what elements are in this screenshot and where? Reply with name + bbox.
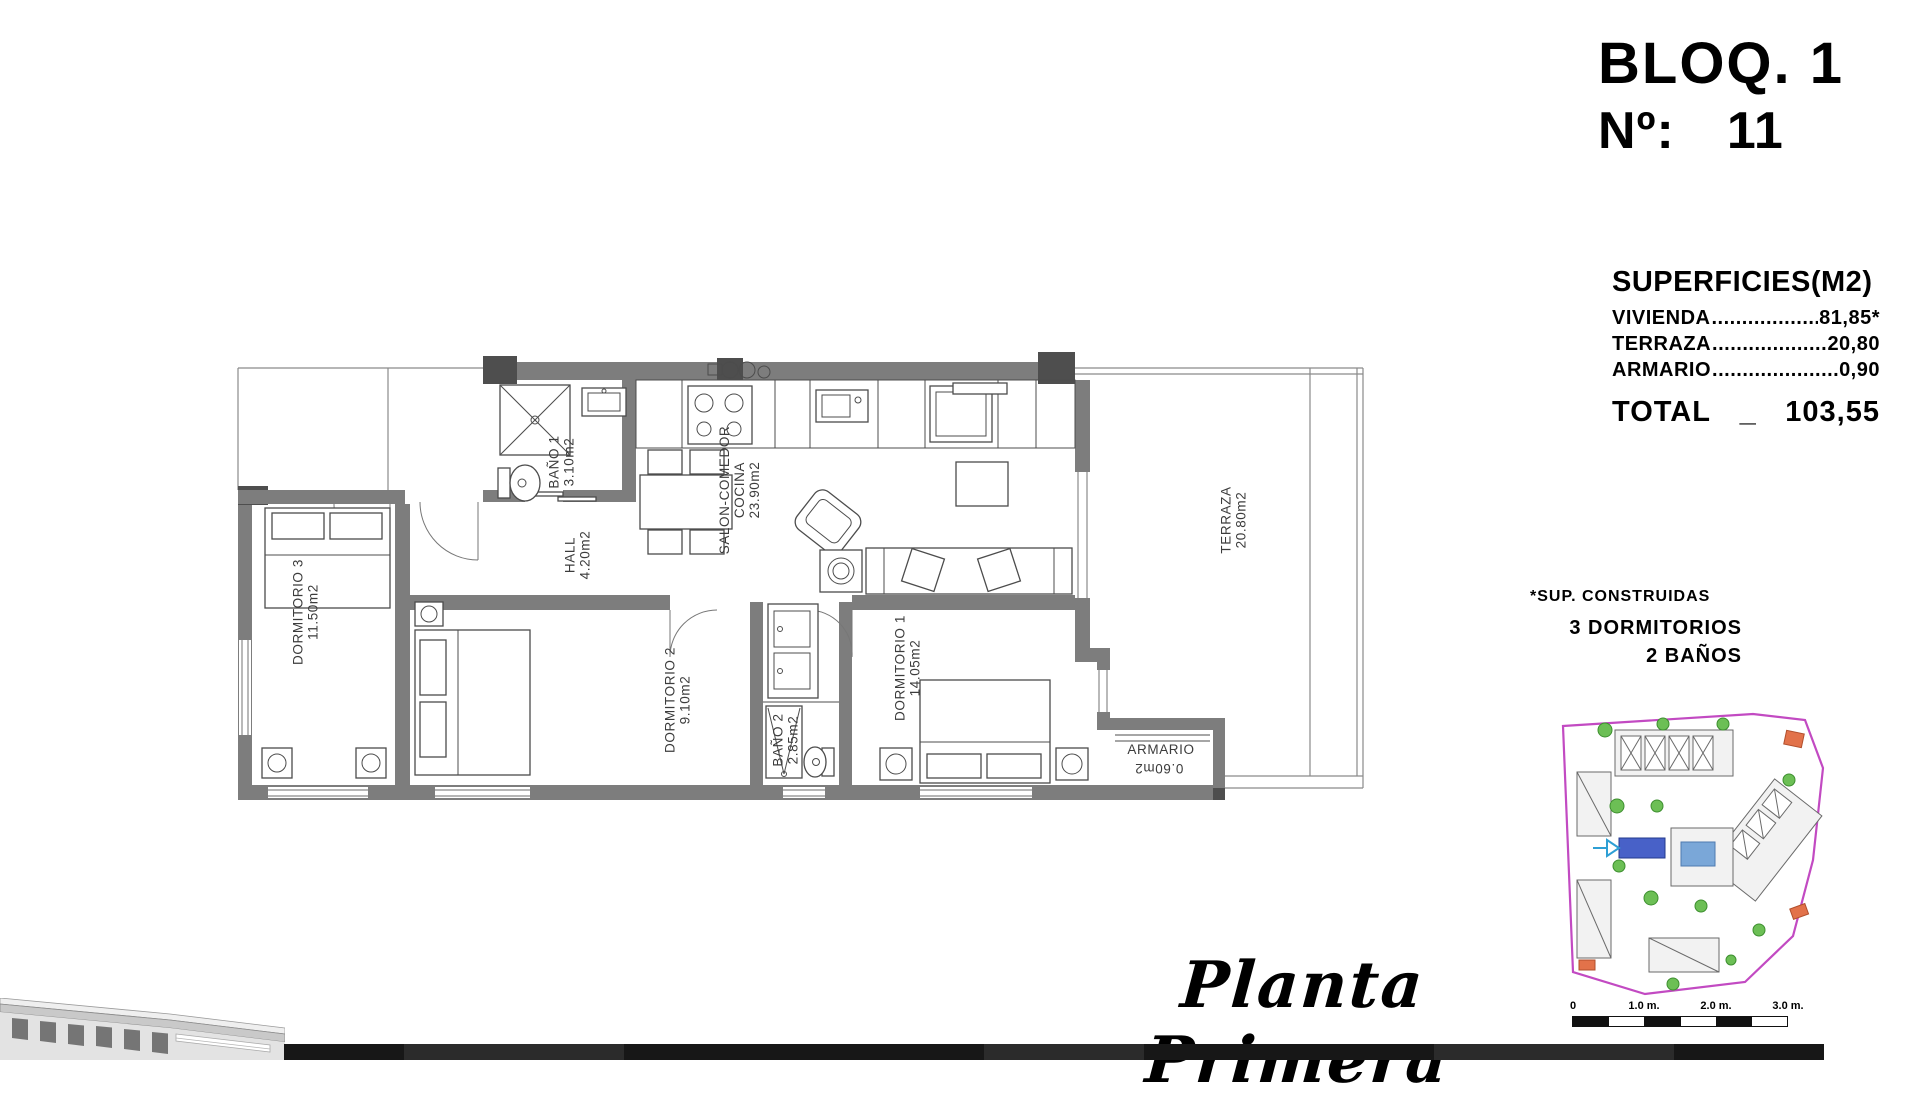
- total-value: 103,55: [1785, 396, 1880, 429]
- scale-labels: 01.0 m.2.0 m.3.0 m.: [1572, 1000, 1788, 1014]
- scale-label: 2.0 m.: [1700, 1000, 1731, 1012]
- dot-leader: ....................................: [1712, 333, 1826, 356]
- room-summary: 3 DORMITORIOS 2 BAÑOS: [1528, 614, 1742, 670]
- surface-value: 81,85*: [1819, 307, 1880, 330]
- surface-total-row: TOTAL _ 103,55: [1612, 396, 1880, 429]
- total-label: TOTAL: [1612, 396, 1711, 429]
- dormitorio1-terrace-window: [1099, 670, 1107, 712]
- side-table: [956, 462, 1008, 506]
- svg-text:HALL4.20m2: HALL4.20m2: [563, 531, 593, 580]
- dot-leader: ....................................: [1712, 359, 1838, 382]
- bed2: [415, 602, 530, 775]
- unit-number-row: Nº: 11: [1598, 101, 1898, 161]
- site-location-plan: [1553, 710, 1838, 1002]
- scale-ruler: [1572, 1016, 1788, 1027]
- block-title: BLOQ. 1: [1598, 34, 1898, 95]
- bath2-toilet: [804, 747, 834, 777]
- tv-bench: [953, 383, 1007, 394]
- salon-terrace-window: [1078, 472, 1087, 598]
- bedrooms-count: 3 DORMITORIOS: [1528, 614, 1742, 642]
- sofa: [866, 548, 1072, 594]
- surface-row-armario: ARMARIO ................................…: [1612, 359, 1880, 382]
- surface-row-vivienda: VIVIENDA ...............................…: [1612, 307, 1880, 330]
- surface-label: VIVIENDA: [1612, 307, 1710, 330]
- scale-label: 3.0 m.: [1772, 1000, 1803, 1012]
- unit-number-label: Nº:: [1598, 101, 1675, 161]
- surfaces-title: SUPERFICIES(M2): [1612, 266, 1880, 299]
- double-sink-vanity: [763, 604, 839, 702]
- svg-text:TERRAZA20.80m2: TERRAZA20.80m2: [1219, 486, 1249, 553]
- scale-bar: 01.0 m.2.0 m.3.0 m.: [1572, 1000, 1788, 1030]
- site-pool: [1681, 842, 1715, 866]
- bathrooms-count: 2 BAÑOS: [1528, 642, 1742, 670]
- floor-name-title: Planta Primera: [1025, 948, 1575, 1098]
- armchair: [791, 486, 865, 558]
- lamp-table: [820, 550, 862, 592]
- scale-label: 1.0 m.: [1628, 1000, 1659, 1012]
- surface-label: TERRAZA: [1612, 333, 1711, 356]
- svg-text:BAÑO 22.85m2: BAÑO 22.85m2: [771, 713, 801, 766]
- svg-text:0.60m2: 0.60m2: [1135, 761, 1184, 776]
- scale-label: 0: [1570, 1000, 1576, 1012]
- bath1-sink: [582, 388, 626, 416]
- bed3: [262, 508, 390, 778]
- svg-text:SALON-COMEDORCOCINA23.90m2: SALON-COMEDORCOCINA23.90m2: [717, 426, 762, 555]
- kitchen-sink: [816, 390, 868, 422]
- photo-strip: [284, 1044, 1824, 1060]
- building-render: [0, 998, 285, 1060]
- block-header: BLOQ. 1 Nº: 11: [1598, 34, 1898, 161]
- unit-number: 11: [1727, 101, 1784, 161]
- total-separator: _: [1740, 396, 1757, 429]
- surface-value: 0,90: [1839, 359, 1880, 382]
- surface-value: 20,80: [1827, 333, 1880, 356]
- landing-area: [238, 368, 490, 490]
- surface-row-terraza: TERRAZA ................................…: [1612, 333, 1880, 356]
- surfaces-panel: SUPERFICIES(M2) VIVIENDA ...............…: [1612, 266, 1880, 429]
- surface-label: ARMARIO: [1612, 359, 1711, 382]
- page: { "header": { "block": "BLOQ. 1", "numbe…: [0, 0, 1920, 1060]
- svg-text:DORMITORIO 29.10m2: DORMITORIO 29.10m2: [663, 647, 693, 753]
- dormitorio3-side-window: [239, 640, 251, 735]
- constructed-note: *SUP. CONSTRUIDAS: [1530, 588, 1710, 606]
- svg-text:BAÑO 13.10m2: BAÑO 13.10m2: [547, 435, 577, 488]
- site-highlight-unit: [1619, 838, 1665, 858]
- floor-plan-drawing: BAÑO 13.10m2HALL4.20m2SALON-COMEDORCOCIN…: [230, 350, 1370, 805]
- svg-text:ARMARIO: ARMARIO: [1127, 742, 1194, 757]
- svg-text:DORMITORIO 114.05m2: DORMITORIO 114.05m2: [893, 615, 923, 721]
- dot-leader: ....................................: [1711, 307, 1818, 330]
- armario-closet: [1115, 735, 1210, 741]
- bath1-toilet: [498, 465, 540, 501]
